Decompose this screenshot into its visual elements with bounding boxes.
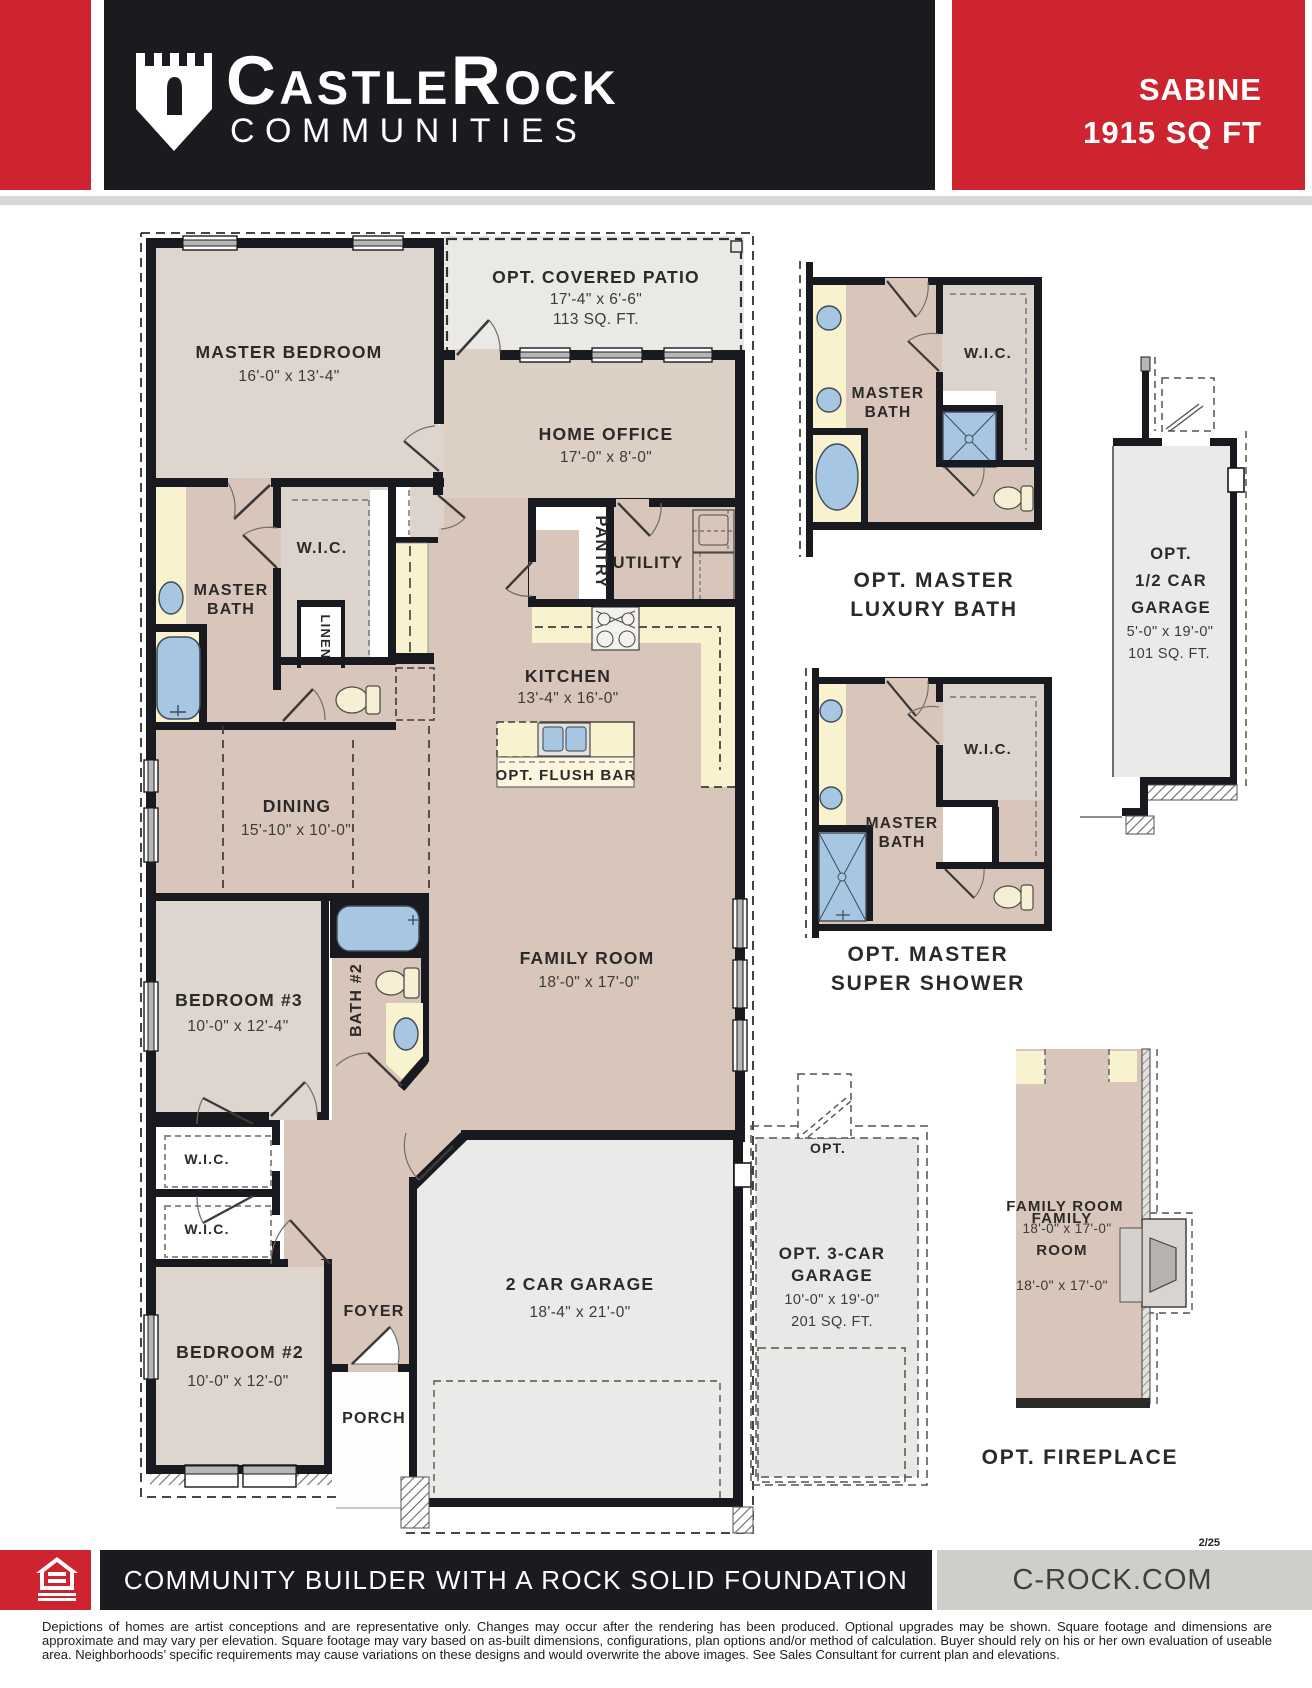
svg-text:ROOM: ROOM xyxy=(1036,1242,1087,1259)
svg-text:MASTER: MASTER xyxy=(852,385,925,402)
svg-text:BATH: BATH xyxy=(865,404,912,421)
svg-text:KITCHEN: KITCHEN xyxy=(525,666,611,686)
svg-text:5'-0" x 19'-0": 5'-0" x 19'-0" xyxy=(1127,624,1214,640)
svg-text:MASTER: MASTER xyxy=(194,582,269,599)
svg-text:OPT. MASTER: OPT. MASTER xyxy=(848,943,1009,966)
svg-text:13'-4" x 16'-0": 13'-4" x 16'-0" xyxy=(517,690,618,707)
svg-text:18'-0" x 17'-0": 18'-0" x 17'-0" xyxy=(1016,1277,1108,1293)
svg-text:UTILITY: UTILITY xyxy=(613,554,684,572)
svg-text:GARAGE: GARAGE xyxy=(1131,599,1211,617)
svg-text:BATH: BATH xyxy=(879,834,926,851)
svg-text:BATH: BATH xyxy=(207,601,255,618)
svg-text:MASTER: MASTER xyxy=(866,815,939,832)
svg-text:18'-0" x 17'-0": 18'-0" x 17'-0" xyxy=(538,974,639,991)
svg-text:FAMILY: FAMILY xyxy=(1032,1210,1093,1227)
svg-text:17'-0" x 8'-0": 17'-0" x 8'-0" xyxy=(560,449,652,466)
svg-text:2 CAR GARAGE: 2 CAR GARAGE xyxy=(506,1274,655,1294)
svg-text:OPT. FLUSH BAR: OPT. FLUSH BAR xyxy=(496,767,637,784)
svg-text:BEDROOM #2: BEDROOM #2 xyxy=(176,1342,304,1362)
svg-text:BEDROOM #3: BEDROOM #3 xyxy=(175,990,303,1010)
svg-text:W.I.C.: W.I.C. xyxy=(184,1221,229,1237)
svg-text:OPT. COVERED PATIO: OPT. COVERED PATIO xyxy=(492,267,700,287)
svg-text:10'-0" x 19'-0": 10'-0" x 19'-0" xyxy=(784,1292,879,1308)
svg-text:MASTER BEDROOM: MASTER BEDROOM xyxy=(196,342,383,362)
svg-text:16'-0" x 13'-4": 16'-0" x 13'-4" xyxy=(238,368,339,385)
svg-text:SUPER SHOWER: SUPER SHOWER xyxy=(831,972,1025,995)
svg-text:W.I.C.: W.I.C. xyxy=(184,1151,229,1167)
svg-text:17'-4" x 6'-6": 17'-4" x 6'-6" xyxy=(550,291,642,308)
svg-text:113 SQ. FT.: 113 SQ. FT. xyxy=(553,311,639,328)
svg-text:GARAGE: GARAGE xyxy=(791,1266,873,1285)
svg-text:OPT.: OPT. xyxy=(1150,545,1191,563)
svg-text:OPT. 3-CAR: OPT. 3-CAR xyxy=(779,1244,885,1263)
svg-text:PORCH: PORCH xyxy=(342,1410,406,1427)
svg-text:LINEN: LINEN xyxy=(318,615,333,660)
svg-text:DINING: DINING xyxy=(263,796,331,816)
svg-text:W.I.C.: W.I.C. xyxy=(297,540,348,557)
svg-text:18'-4" x 21'-0": 18'-4" x 21'-0" xyxy=(529,1304,630,1321)
svg-text:201 SQ. FT.: 201 SQ. FT. xyxy=(791,1314,873,1330)
svg-text:OPT.: OPT. xyxy=(810,1140,846,1156)
svg-text:BATH #2: BATH #2 xyxy=(348,963,365,1037)
svg-text:W.I.C.: W.I.C. xyxy=(964,741,1012,758)
svg-text:OPT. MASTER: OPT. MASTER xyxy=(854,569,1015,592)
svg-text:FOYER: FOYER xyxy=(343,1303,404,1320)
svg-text:W.I.C.: W.I.C. xyxy=(964,345,1012,362)
svg-text:OPT. FIREPLACE: OPT. FIREPLACE xyxy=(982,1446,1179,1469)
svg-text:15'-10" x 10'-0": 15'-10" x 10'-0" xyxy=(241,822,351,839)
svg-text:101 SQ. FT.: 101 SQ. FT. xyxy=(1128,646,1210,662)
svg-text:10'-0" x 12'-4": 10'-0" x 12'-4" xyxy=(187,1018,288,1035)
svg-text:HOME OFFICE: HOME OFFICE xyxy=(539,424,674,444)
svg-text:LUXURY BATH: LUXURY BATH xyxy=(850,598,1018,621)
svg-text:PANTRY: PANTRY xyxy=(592,515,610,588)
svg-text:FAMILY ROOM: FAMILY ROOM xyxy=(520,948,655,968)
svg-text:10'-0" x 12'-0": 10'-0" x 12'-0" xyxy=(187,1373,288,1390)
svg-text:1/2 CAR: 1/2 CAR xyxy=(1135,572,1207,590)
